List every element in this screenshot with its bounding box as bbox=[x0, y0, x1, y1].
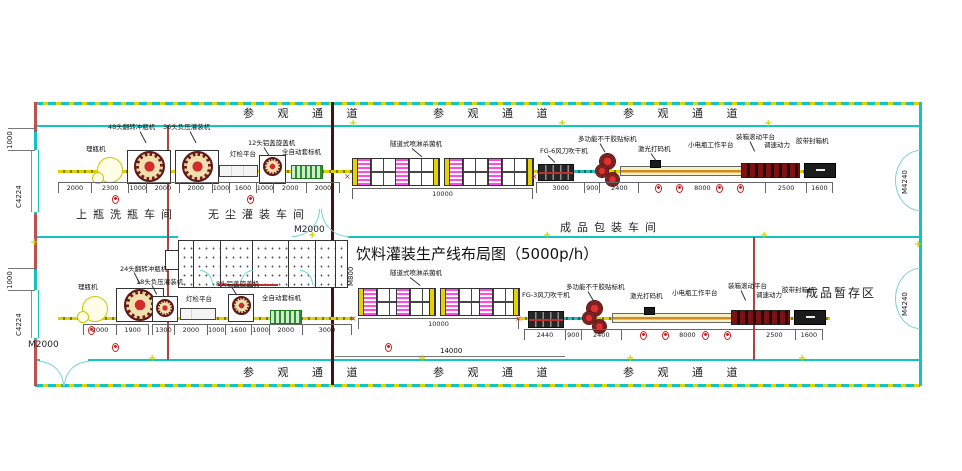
line2-transfer-conveyor bbox=[562, 317, 582, 320]
line1-dryer-label: FG-6风刀吹干机 bbox=[540, 148, 588, 155]
dim: 1900 bbox=[116, 325, 148, 335]
level-marker-icon bbox=[385, 343, 392, 352]
line2-dims-mid: 1300 2000 1000 1600 1000 2000 3000 bbox=[152, 324, 352, 335]
changing-room-cell bbox=[316, 241, 336, 287]
dim: 1000 bbox=[128, 183, 146, 193]
line2-sleever-label: 全自动套标机 bbox=[262, 295, 301, 302]
line1-power-label: 调速动力 bbox=[764, 142, 790, 149]
line2-laser-coder bbox=[644, 307, 655, 315]
conveyor-junction-icon: × bbox=[350, 315, 357, 323]
level-marker-icon bbox=[112, 195, 119, 204]
line1-sleever-label: 全自动套标机 bbox=[282, 149, 321, 156]
line1-transfer-conveyor bbox=[574, 170, 596, 173]
window-c4224 bbox=[31, 290, 39, 338]
wall-cross-icon: + bbox=[349, 119, 357, 129]
wall-cross-icon: + bbox=[760, 231, 768, 241]
wall-cross-icon: + bbox=[798, 354, 806, 364]
dim: 2000 bbox=[273, 183, 306, 193]
line2-unscrambler-label: 理瓶机 bbox=[78, 284, 98, 291]
level-marker-icon bbox=[702, 331, 709, 340]
tunnel-grid-section bbox=[409, 159, 434, 185]
wall-cross-icon: + bbox=[308, 231, 316, 241]
line2-filler-rotor bbox=[156, 299, 174, 317]
level-marker-icon bbox=[662, 331, 669, 340]
dim: 10000 bbox=[358, 319, 518, 329]
dim: 2400 bbox=[581, 330, 621, 340]
dim: 1000 bbox=[251, 325, 269, 335]
tunnel-pink-section bbox=[358, 159, 371, 185]
line2-rinser-label: 24头翻转冲瓶机 bbox=[120, 266, 167, 273]
dim: 2000 bbox=[146, 183, 179, 193]
dim-tick bbox=[8, 150, 35, 151]
leader-line bbox=[410, 277, 421, 286]
wall-cross-icon: + bbox=[543, 231, 551, 241]
dim: 2000 bbox=[174, 325, 207, 335]
wall-cross-icon: + bbox=[764, 119, 772, 129]
line1-rinser-label: 48头翻转冲瓶机 bbox=[108, 124, 155, 131]
tunnel-grid-section bbox=[459, 289, 480, 315]
level-marker-icon bbox=[676, 184, 683, 193]
floor-plan: 1000 1000 C4224 C4224 M4240 M4240 M2000 … bbox=[0, 0, 962, 471]
dim: 1000 bbox=[212, 183, 230, 193]
conveyor-junction-icon: × bbox=[344, 173, 351, 181]
line1-sterilizer-label: 隧道式喷淋杀菌机 bbox=[390, 141, 442, 148]
corridor-label-bottom: 参 观 通 道 bbox=[623, 364, 748, 380]
line1-laser-label: 激光打码机 bbox=[638, 146, 671, 153]
tunnel-grid-section bbox=[377, 289, 397, 315]
wall-cross-icon: + bbox=[30, 238, 38, 248]
dim: 3000 bbox=[302, 325, 351, 335]
line1-filler-rotor bbox=[182, 151, 213, 182]
leader-line bbox=[140, 131, 147, 143]
line2-platform-label: 小电瓶工作平台 bbox=[672, 290, 718, 297]
left-window-label: C4224 bbox=[15, 296, 23, 336]
line1-sterilizer-tunnel bbox=[352, 158, 440, 186]
line1-inspection-label: 灯检平台 bbox=[230, 151, 256, 158]
conveyor-junction-icon: × bbox=[531, 173, 538, 181]
line1-sleever bbox=[291, 165, 323, 179]
wall-cross-icon: + bbox=[148, 354, 156, 364]
corridor-label-top: 参 观 通 道 bbox=[623, 105, 748, 121]
right-door-label: M4240 bbox=[901, 158, 909, 194]
line1-unscrambler-label: 理瓶机 bbox=[86, 146, 106, 153]
bottom-corridor-line-b bbox=[88, 359, 920, 361]
line2-capper-label: 8头铝盖旋盖机 bbox=[216, 281, 259, 288]
line1-air-dryer bbox=[538, 164, 574, 181]
level-marker-icon bbox=[737, 184, 744, 193]
line2-labeler-label: 多功能不干胶贴标机 bbox=[566, 284, 625, 291]
corridor-label-top: 参 观 通 道 bbox=[433, 105, 558, 121]
dim: 2300 bbox=[91, 183, 129, 193]
wall-cross-icon: + bbox=[914, 240, 922, 250]
line2-packer-label: 装箱滚动平台 bbox=[728, 283, 767, 290]
overall-dim-label: 14000 bbox=[440, 348, 462, 355]
block-door-label: M800 bbox=[347, 250, 355, 286]
line1-work-platform bbox=[620, 166, 743, 176]
bottom-left-door-arc bbox=[39, 361, 64, 386]
dim: 1300 bbox=[152, 325, 174, 335]
room-label-packing: 成品包装车间 bbox=[560, 219, 662, 235]
tunnel-pink-section bbox=[364, 289, 377, 315]
line2-sealer-label: 胶带封箱机 bbox=[782, 287, 815, 294]
tunnel-grid-section bbox=[463, 159, 489, 185]
window-c4224 bbox=[31, 150, 39, 212]
line2-air-dryer bbox=[528, 311, 564, 328]
line1-packer-label: 装箱滚动平台 bbox=[736, 134, 775, 141]
bottom-left-door-label: M2000 bbox=[28, 340, 59, 350]
line2-work-platform bbox=[612, 313, 733, 323]
line1-sealer-label: 胶带封箱机 bbox=[796, 138, 829, 145]
wall-cross-icon: + bbox=[418, 354, 426, 364]
tunnel-cap bbox=[430, 289, 435, 315]
line2-dim-tunnel: 10000 bbox=[358, 318, 519, 329]
wall-cross-icon: + bbox=[558, 119, 566, 129]
bottom-left-door-arc bbox=[64, 361, 89, 386]
leader-line bbox=[412, 148, 423, 157]
dim: 2500 bbox=[765, 183, 805, 193]
leader-line bbox=[190, 131, 197, 143]
overall-dim-line bbox=[335, 356, 565, 357]
left-window-label: C4224 bbox=[15, 168, 23, 208]
dryer-belt-line bbox=[539, 172, 573, 174]
dim: 2000 bbox=[179, 183, 212, 193]
leader-line bbox=[600, 143, 606, 152]
dim: 1000 bbox=[256, 183, 274, 193]
line2-sterilizer-tunnel bbox=[440, 288, 520, 316]
dim: 2000 bbox=[269, 325, 302, 335]
right-door-label: M4240 bbox=[901, 280, 909, 316]
line2-packing-platform bbox=[731, 310, 790, 325]
line1-packing-platform bbox=[741, 163, 800, 178]
line2-filler-label: 18头负压灌装机 bbox=[136, 279, 183, 286]
tunnel-pink-section bbox=[397, 289, 410, 315]
tunnel-cap bbox=[434, 159, 439, 185]
dim: 1000 bbox=[207, 325, 225, 335]
corridor-label-bottom: 参 观 通 道 bbox=[433, 364, 558, 380]
dim-tick bbox=[8, 290, 35, 291]
dryer-belt-line bbox=[529, 319, 563, 321]
dim: 1600 bbox=[806, 183, 832, 193]
line2-power-label: 调速动力 bbox=[756, 292, 782, 299]
left-window-dim-label: 1000 bbox=[6, 129, 14, 149]
partition-storage bbox=[753, 237, 755, 360]
room-label-filling: 无尘灌装车间 bbox=[208, 206, 310, 222]
unscrambler-hopper bbox=[77, 311, 89, 323]
line2-sleever bbox=[270, 310, 302, 324]
corridor-label-bottom: 参 观 通 道 bbox=[243, 364, 368, 380]
drawing-title: 饮料灌装生产线布局图（5000p/h） bbox=[356, 243, 598, 264]
line1-inspection-platform bbox=[219, 165, 258, 177]
tunnel-pink-section bbox=[446, 289, 459, 315]
line1-capper-label: 12头铝盖旋盖机 bbox=[248, 140, 295, 147]
wall-cross-icon: + bbox=[626, 354, 634, 364]
level-marker-icon bbox=[88, 326, 95, 335]
line2-sterilizer-tunnel bbox=[358, 288, 436, 316]
leader-line bbox=[548, 155, 556, 163]
line2-inspection-platform bbox=[180, 308, 216, 320]
dim: 1600 bbox=[229, 183, 255, 193]
line2-dryer-label: FG-3风刀吹干机 bbox=[522, 292, 570, 299]
dim: 3000 bbox=[536, 183, 584, 193]
line2-laser-label: 激光打码机 bbox=[630, 293, 663, 300]
level-marker-icon bbox=[655, 184, 662, 193]
line2-dims-right: 2440 900 2400 8000 2500 1600 bbox=[524, 329, 823, 340]
mid-wall-right bbox=[348, 236, 920, 238]
left-window-dim-label: 1000 bbox=[6, 269, 14, 289]
level-marker-icon bbox=[716, 184, 723, 193]
dim: 2440 bbox=[524, 330, 565, 340]
dim: 2000 bbox=[306, 183, 339, 193]
tunnel-grid-section bbox=[493, 289, 514, 315]
line1-tape-sealer bbox=[804, 163, 836, 178]
line1-capper-rotor bbox=[263, 157, 282, 176]
line1-filler-label: 36头负压灌装机 bbox=[163, 124, 210, 131]
sealer-slot bbox=[806, 316, 815, 318]
line1-dims-left: 2000 2300 1000 2000 2000 1000 1600 1000 … bbox=[58, 182, 340, 193]
room-label-storage: 成品暂存区 bbox=[806, 284, 876, 301]
line1-rinser-rotor bbox=[134, 151, 165, 182]
line1-dim-tunnel: 10000 bbox=[352, 188, 533, 199]
tunnel-pink-section bbox=[396, 159, 409, 185]
room-label-wash: 上瓶洗瓶车间 bbox=[76, 206, 178, 222]
line1-labeler-label: 多功能不干胶贴标机 bbox=[578, 136, 637, 143]
conveyor-junction-icon: × bbox=[515, 315, 522, 323]
dim: 900 bbox=[584, 183, 599, 193]
level-marker-icon bbox=[724, 331, 731, 340]
tunnel-grid-section bbox=[502, 159, 528, 185]
tunnel-pink-section bbox=[489, 159, 502, 185]
center-door-arc bbox=[321, 209, 349, 237]
sealer-slot bbox=[816, 169, 825, 171]
leader-line bbox=[750, 141, 756, 151]
dim: 1600 bbox=[795, 330, 822, 340]
line2-tape-sealer bbox=[794, 310, 826, 325]
dim: 2400 bbox=[599, 183, 638, 193]
dim: 2000 bbox=[58, 183, 91, 193]
dim: 900 bbox=[565, 330, 581, 340]
level-marker-icon bbox=[247, 195, 254, 204]
dim: 1600 bbox=[225, 325, 252, 335]
level-marker-icon bbox=[640, 331, 647, 340]
dim: 10000 bbox=[352, 189, 532, 199]
tunnel-grid-section bbox=[410, 289, 430, 315]
dim: 2500 bbox=[753, 330, 795, 340]
line1-platform-label: 小电瓶工作平台 bbox=[688, 142, 734, 149]
tunnel-grid-section bbox=[371, 159, 396, 185]
line1-dims-right: 3000 900 2400 8000 2500 1600 bbox=[536, 182, 833, 193]
tunnel-pink-section bbox=[450, 159, 463, 185]
line1-bottle-unscrambler bbox=[97, 157, 123, 183]
mid-wall-left bbox=[35, 236, 178, 238]
tunnel-cap bbox=[514, 289, 519, 315]
changing-room-cell bbox=[336, 241, 347, 287]
level-marker-icon bbox=[112, 343, 119, 352]
line2-capper-rotor bbox=[232, 296, 251, 315]
line2-sterilizer-label: 隧道式喷淋杀菌机 bbox=[390, 270, 442, 277]
line2-bottle-unscrambler bbox=[82, 296, 108, 322]
line2-inspection-label: 灯检平台 bbox=[186, 296, 212, 303]
leader-line bbox=[741, 290, 747, 300]
bottom-outer-wall bbox=[35, 384, 920, 387]
tunnel-pink-section bbox=[480, 289, 493, 315]
line1-sterilizer-tunnel bbox=[444, 158, 534, 186]
